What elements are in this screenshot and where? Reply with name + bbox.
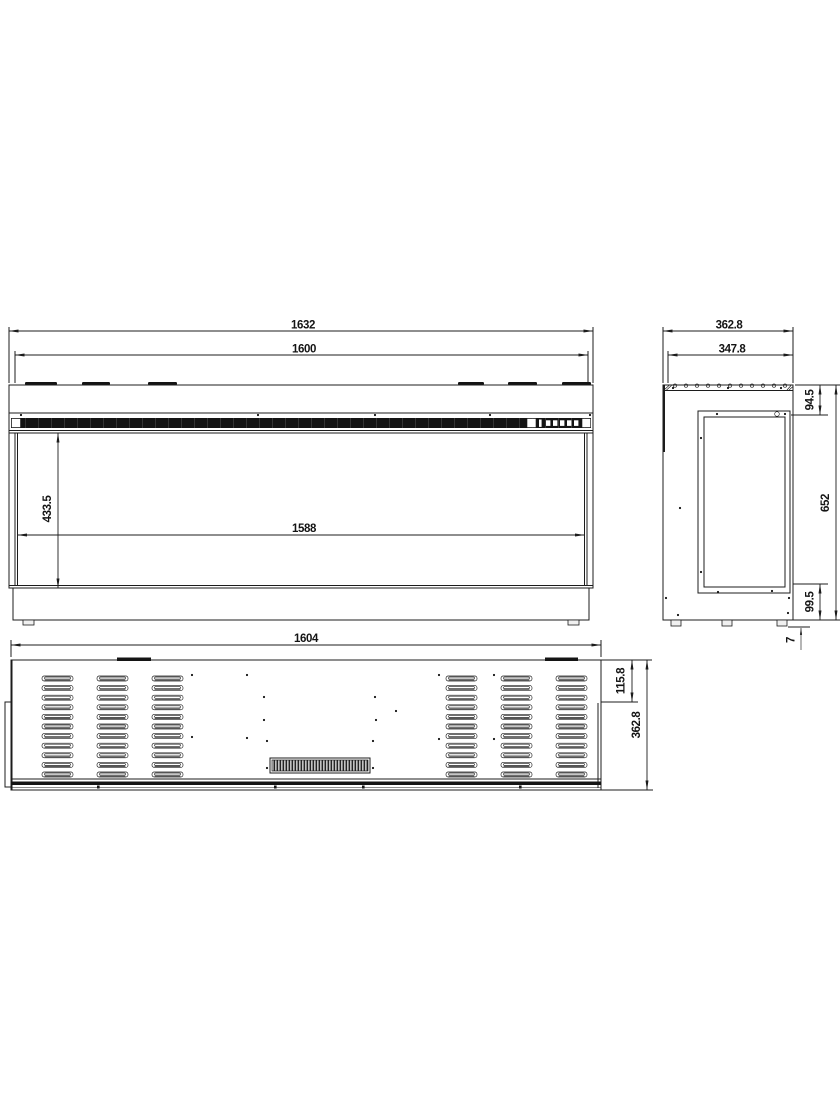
- side-rear-panel: [698, 411, 790, 593]
- control-button: [546, 420, 550, 426]
- rear-bottom-rail: [11, 779, 601, 789]
- dim-rear-width: 1604: [11, 633, 601, 657]
- front-body-outline: [9, 385, 593, 588]
- dim-side-bottom-section: 99.5: [805, 584, 821, 620]
- rear-vent-louvers-left: [42, 676, 183, 777]
- dim-rear-side-offset: 115.8: [616, 660, 633, 702]
- fireplace-three-view-drawing: 1632 1600: [0, 0, 840, 1120]
- dim-label-front-overall-width: 1632: [291, 320, 315, 332]
- dim-front-frame-width: 1600: [15, 344, 588, 384]
- dim-side-overall-height: 652: [820, 385, 836, 620]
- control-button: [567, 420, 571, 426]
- side-view: 362.8 347.8: [663, 320, 840, 651]
- rear-screw-dots: [191, 674, 495, 769]
- side-foot: [671, 620, 681, 626]
- drawing-page: 1632 1600: [0, 0, 840, 1120]
- rear-view: 1604: [5, 633, 653, 790]
- dim-label-side-overall-depth: 362.8: [716, 320, 744, 332]
- side-foot: [722, 620, 732, 626]
- dim-label-side-bottom-section: 99.5: [805, 591, 817, 613]
- side-foot: [777, 620, 787, 626]
- dim-label-side-foot-height: 7: [786, 637, 798, 643]
- dim-label-side-body-depth: 347.8: [719, 344, 747, 356]
- dim-side-body-depth: 347.8: [668, 344, 793, 384]
- control-button: [553, 420, 557, 426]
- control-button: [574, 420, 578, 426]
- front-foot-right: [568, 620, 579, 625]
- dim-rear-height: 362.8: [631, 660, 647, 790]
- front-view: 1632 1600: [9, 320, 593, 626]
- side-screw-dots: [665, 387, 790, 616]
- side-panel-hole: [775, 412, 780, 417]
- side-body-outline: [663, 385, 793, 620]
- vent-end-cap-left: [12, 419, 21, 428]
- dim-label-rear-height: 362.8: [631, 711, 643, 739]
- dim-label-front-opening-width: 1588: [292, 523, 317, 535]
- dim-label-rear-side-offset: 115.8: [616, 667, 628, 694]
- dim-label-rear-width: 1604: [294, 633, 319, 645]
- dim-label-front-frame-width: 1600: [292, 344, 316, 356]
- dim-front-opening-height: 433.5: [42, 433, 58, 588]
- dim-side-top-section: 94.5: [805, 385, 821, 415]
- side-extension-lines: [788, 385, 840, 627]
- front-base: [13, 588, 589, 620]
- dim-label-side-overall-height: 652: [820, 494, 832, 512]
- rear-top-tab: [117, 658, 151, 662]
- dim-label-front-opening-height: 433.5: [42, 495, 54, 523]
- front-foot-left: [23, 620, 34, 625]
- rear-center-grille: [270, 758, 370, 773]
- front-heater-vent-band: [11, 414, 591, 428]
- front-screw-dots: [20, 414, 591, 416]
- rear-vent-louvers-right: [446, 676, 587, 777]
- dim-front-opening-width: 1588: [18, 523, 585, 535]
- rear-top-tab: [545, 658, 578, 662]
- control-button: [560, 420, 564, 426]
- dim-side-foot-height: 7: [786, 628, 802, 650]
- dim-label-side-top-section: 94.5: [805, 389, 817, 411]
- rear-left-flange: [5, 702, 11, 787]
- front-glass-opening: [9, 431, 593, 586]
